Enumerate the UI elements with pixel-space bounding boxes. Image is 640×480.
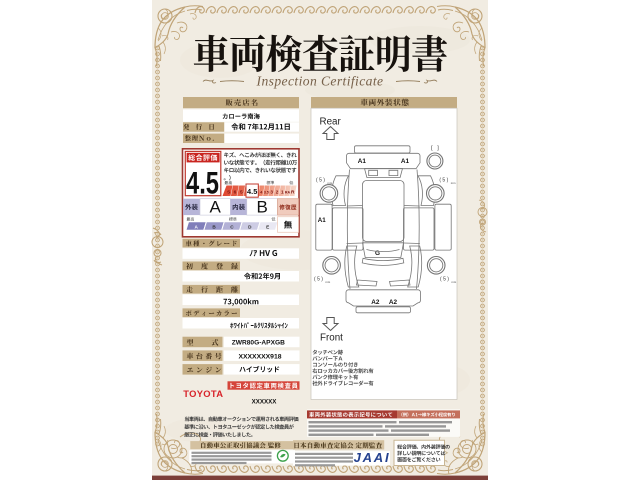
svg-text:2: 2 — [276, 190, 279, 195]
svg-text:4.5: 4.5 — [186, 165, 219, 201]
svg-text:[ ]: [ ] — [431, 146, 439, 152]
svg-text:B: B — [257, 198, 268, 217]
svg-text:( 5 ): ( 5 ) — [316, 177, 325, 183]
svg-text:mm: mm — [452, 280, 457, 284]
svg-text:ZWR80G-APXGB: ZWR80G-APXGB — [232, 340, 285, 347]
svg-text:RA: RA — [285, 191, 291, 195]
svg-text:3: 3 — [270, 190, 273, 195]
svg-text:A1: A1 — [401, 158, 410, 165]
svg-text:mm: mm — [326, 280, 331, 284]
svg-text:mm: mm — [451, 181, 456, 185]
svg-text:A1: A1 — [358, 158, 367, 165]
svg-text:( 5 ): ( 5 ) — [440, 276, 449, 282]
svg-text:A2: A2 — [371, 299, 380, 306]
svg-text:( 5 ): ( 5 ) — [439, 177, 448, 183]
svg-text:A: A — [194, 225, 198, 230]
svg-text:mm: mm — [328, 181, 333, 185]
svg-text:TOYOTA: TOYOTA — [183, 388, 223, 399]
svg-text:XXXXXX: XXXXXX — [252, 398, 278, 405]
svg-text:A1: A1 — [318, 217, 326, 224]
svg-text:A: A — [210, 198, 222, 217]
svg-text:1: 1 — [281, 190, 284, 195]
svg-text:E: E — [266, 225, 269, 230]
svg-text:JAAI: JAAI — [354, 450, 391, 465]
svg-text:C: C — [230, 225, 234, 230]
svg-text:6: 6 — [234, 190, 237, 196]
svg-text:5: 5 — [240, 190, 243, 196]
svg-text:4.5: 4.5 — [247, 187, 257, 196]
svg-text:A2: A2 — [389, 299, 398, 306]
svg-text:Front: Front — [320, 333, 343, 344]
svg-text:Inspection Certificate: Inspection Certificate — [256, 74, 384, 89]
svg-text:3.5: 3.5 — [264, 191, 269, 195]
svg-text:R: R — [291, 190, 295, 196]
svg-text:XXXXXXX918: XXXXXXX918 — [238, 353, 281, 360]
svg-text:( 5 ): ( 5 ) — [314, 276, 323, 282]
